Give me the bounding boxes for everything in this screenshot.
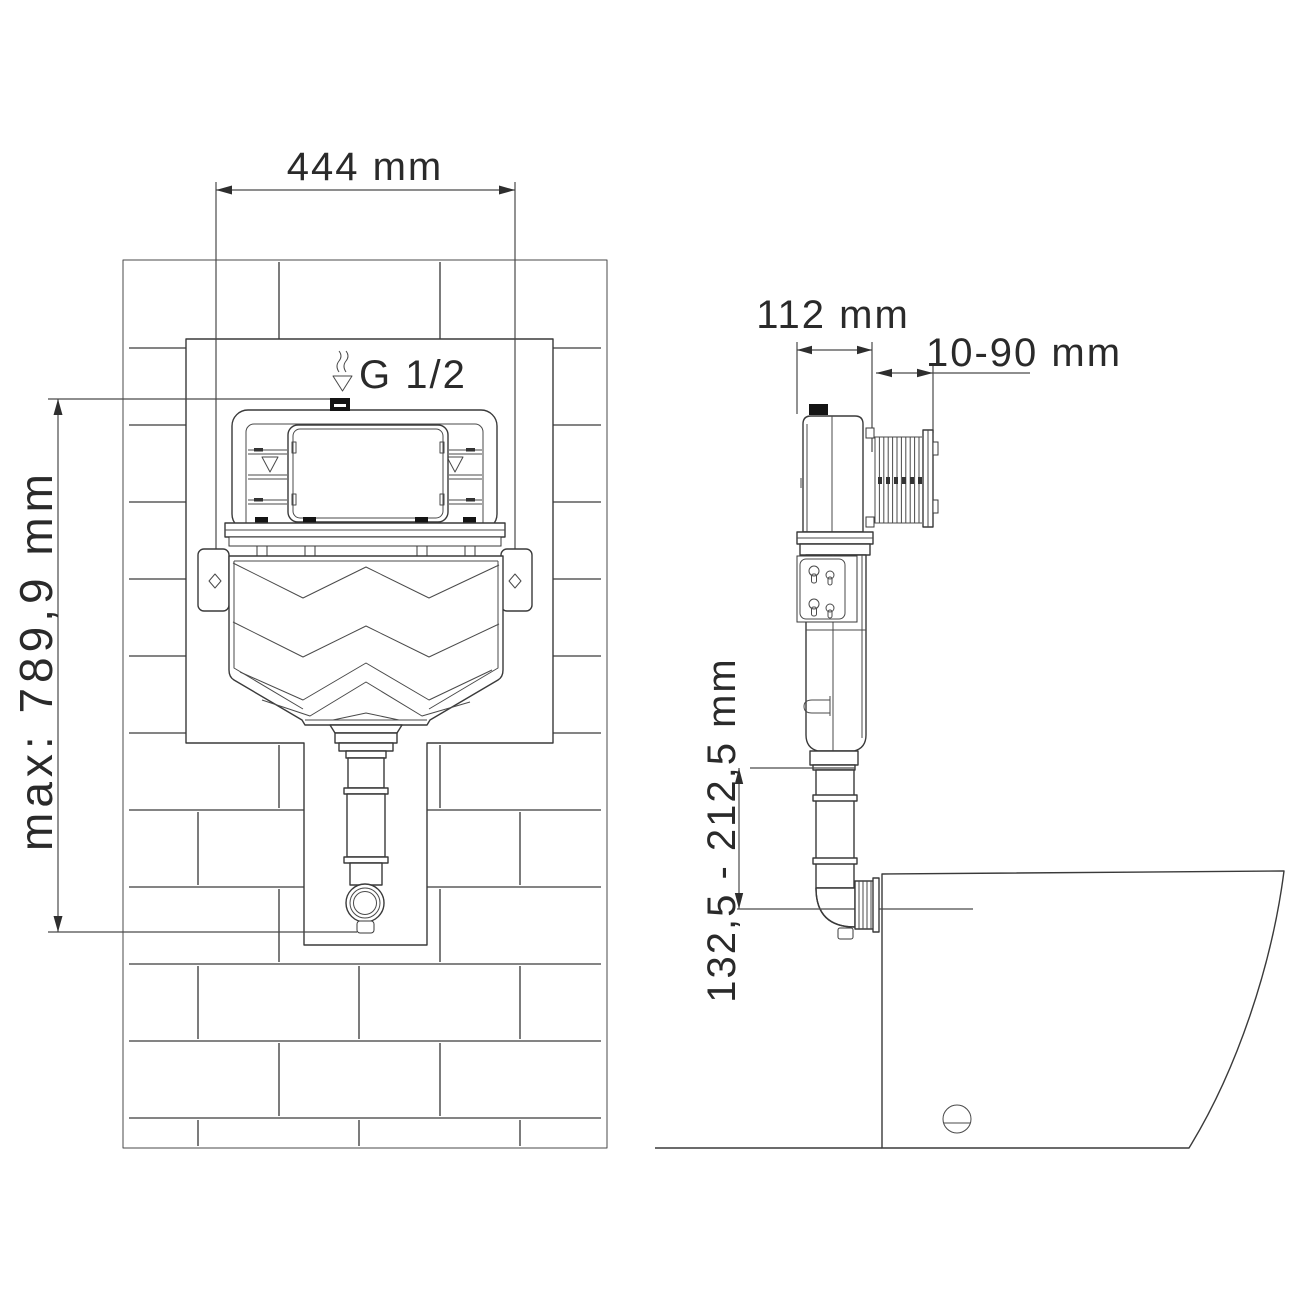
body-upper <box>803 416 863 532</box>
dimension-flush-pipe-label: 132,5 - 212,5 mm <box>700 657 744 1003</box>
bellows-section <box>866 428 938 527</box>
cistern-front-view <box>198 398 532 933</box>
rail-tab <box>303 517 316 523</box>
toilet-bowl-outline <box>882 871 1284 1148</box>
rail-tab <box>463 517 476 523</box>
flush-pipe-side <box>813 770 857 927</box>
slat-clip <box>254 448 263 452</box>
flush-pipe-front <box>344 758 388 933</box>
slat-clip <box>466 498 475 502</box>
outlet-elbow-tab <box>357 921 374 933</box>
side-view: 112 mm 10-90 mm <box>655 293 1284 1148</box>
mounting-plate-side <box>797 556 857 622</box>
toilet-bowl <box>882 871 1284 1148</box>
slat-clip <box>254 498 263 502</box>
dimension-wall-finish: 10-90 mm <box>876 331 1122 433</box>
dimension-height-label: max: 789,9 mm <box>10 469 62 851</box>
mounting-bracket-right <box>501 549 532 611</box>
inlet-connector-slot <box>334 404 346 407</box>
dimension-depth-label: 112 mm <box>756 293 910 337</box>
arrow-up-icon <box>54 399 63 415</box>
frame-tab <box>933 500 938 513</box>
outlet-elbow-front <box>346 884 384 922</box>
outlet-neck <box>346 751 386 758</box>
arrow-left-icon <box>876 369 892 377</box>
access-panel <box>288 425 448 522</box>
arrow-right-icon <box>857 346 872 354</box>
inlet-thread-label: G 1/2 <box>359 353 467 397</box>
installation-diagram: 444 mm max: 789,9 mm G 1/2 <box>0 0 1300 1300</box>
arrow-right-icon <box>499 186 515 195</box>
frame-tab <box>933 442 938 455</box>
slat-clip <box>466 448 475 452</box>
outlet-flange <box>330 725 402 733</box>
elbow-tab <box>838 928 853 939</box>
cistern-side-view <box>797 404 938 927</box>
rail-tab <box>255 517 268 523</box>
dimension-wall-finish-label: 10-90 mm <box>926 331 1122 375</box>
arrow-left-icon <box>797 346 812 354</box>
dimension-width-label: 444 mm <box>287 145 444 189</box>
diagram-canvas: 444 mm max: 789,9 mm G 1/2 <box>0 0 1300 1300</box>
arrow-left-icon <box>216 186 232 195</box>
inlet-cap-side <box>809 404 828 415</box>
rail-tab <box>415 517 428 523</box>
mounting-bracket-left <box>198 549 229 611</box>
support-rail-lower <box>229 537 501 546</box>
outlet-body <box>335 733 397 743</box>
arrow-down-icon <box>54 916 63 932</box>
outlet-step <box>339 743 393 751</box>
